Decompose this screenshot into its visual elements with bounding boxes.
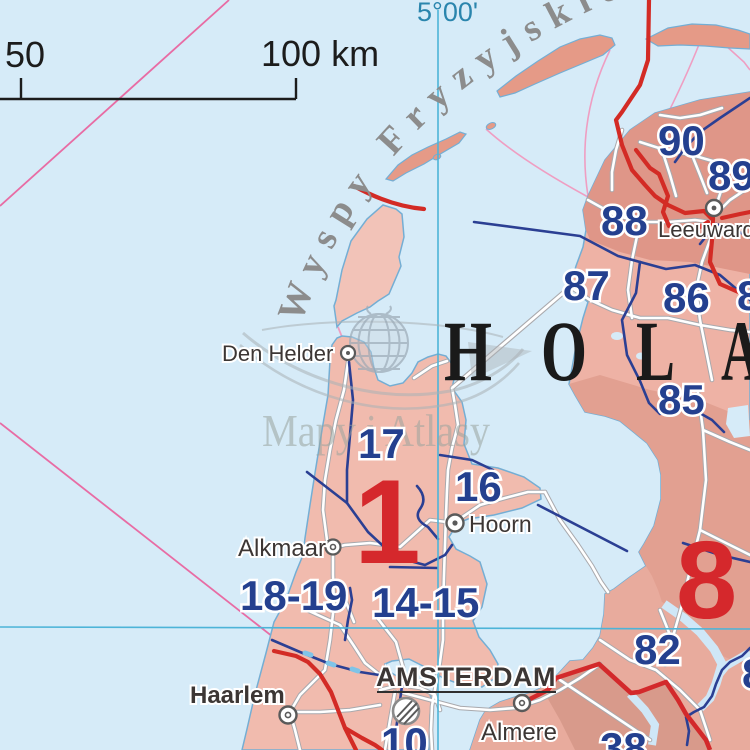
svg-text:Alkmaar: Alkmaar (238, 535, 326, 562)
svg-text:8: 8 (676, 519, 737, 642)
svg-text:H: H (444, 303, 492, 399)
svg-text:90: 90 (658, 117, 705, 164)
svg-text:87: 87 (563, 262, 610, 309)
svg-text:1: 1 (354, 455, 421, 589)
svg-text:Hoorn: Hoorn (469, 511, 532, 537)
svg-text:17: 17 (358, 420, 405, 467)
svg-text:8: 8 (737, 272, 750, 319)
svg-text:Den Helder: Den Helder (222, 341, 333, 366)
svg-text:89: 89 (708, 152, 750, 199)
svg-text:50: 50 (5, 34, 45, 75)
svg-text:82: 82 (634, 626, 681, 673)
svg-text:5°00': 5°00' (417, 0, 478, 27)
svg-text:85: 85 (658, 376, 705, 423)
svg-text:Haarlem: Haarlem (190, 682, 285, 709)
svg-text:AMSTERDAM: AMSTERDAM (376, 662, 556, 692)
svg-text:38: 38 (600, 724, 647, 750)
svg-text:88: 88 (601, 197, 648, 244)
svg-text:86: 86 (663, 274, 710, 321)
svg-text:Almere: Almere (481, 719, 557, 746)
svg-text:8: 8 (742, 650, 750, 697)
svg-text:O: O (541, 303, 587, 399)
svg-text:Leeuwarden: Leeuwarden (658, 217, 750, 242)
svg-text:14-15: 14-15 (372, 579, 479, 626)
svg-text:18-19: 18-19 (240, 572, 347, 619)
svg-text:100 km: 100 km (261, 33, 379, 74)
svg-text:16: 16 (455, 463, 502, 510)
